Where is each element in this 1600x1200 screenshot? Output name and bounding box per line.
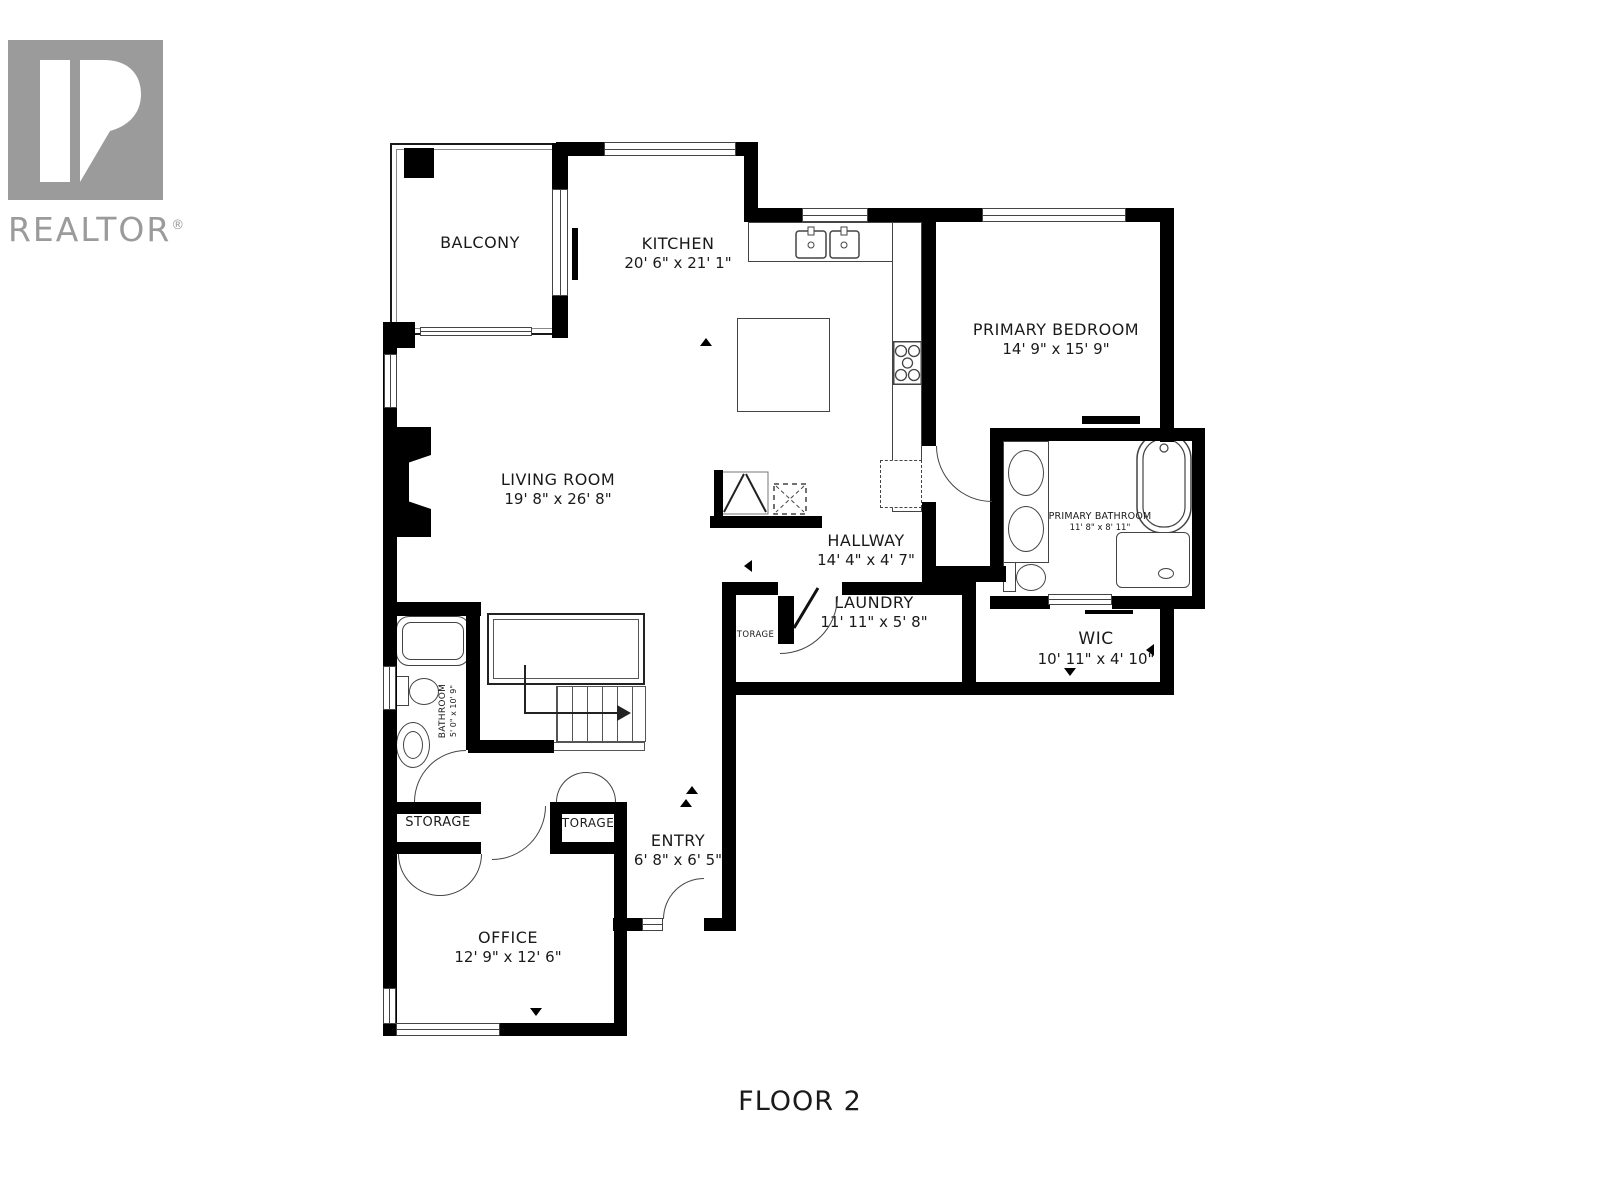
wall [466, 602, 480, 750]
realtor-wordmark: REALTOR® [8, 210, 193, 249]
wall [404, 148, 434, 178]
window [1048, 594, 1112, 605]
window [802, 208, 868, 222]
direction-marker [680, 799, 692, 807]
direction-marker [744, 560, 752, 572]
door-swing [398, 854, 440, 896]
wall [550, 802, 618, 814]
shower [1116, 532, 1190, 588]
room-label-storage-hall: STORAGE [405, 815, 470, 830]
room-label-entry: ENTRY 6' 8" x 6' 5" [634, 831, 722, 869]
wall [936, 208, 982, 222]
direction-marker [1064, 668, 1076, 676]
room-label-hallway: HALLWAY 14' 4" x 4' 7" [817, 531, 915, 569]
wall [922, 208, 936, 446]
wall [1112, 596, 1205, 609]
room-label-primary-bedroom: PRIMARY BEDROOM 14' 9" x 15' 9" [973, 320, 1139, 358]
wall [722, 682, 1174, 695]
wall [962, 582, 976, 682]
wall [552, 296, 568, 338]
stair-direction-arrow [505, 655, 640, 725]
toilet-bowl [409, 678, 439, 705]
toilet-bowl [1016, 564, 1046, 591]
wall [383, 322, 415, 348]
window [982, 208, 1126, 222]
realtor-logo: REALTOR® [8, 40, 193, 249]
direction-marker [686, 786, 698, 794]
wall [922, 502, 936, 566]
fireplace-opening [409, 455, 431, 509]
room-label-living-room: LIVING ROOM 19' 8" x 26' 8" [501, 470, 615, 508]
door-swing [556, 772, 586, 802]
direction-marker [968, 644, 976, 656]
wall [613, 918, 642, 931]
window [642, 918, 663, 931]
kitchen-island [737, 318, 830, 412]
window [420, 327, 532, 336]
appliance-space [880, 460, 922, 508]
window [384, 354, 397, 408]
room-label-bathroom: BATHROOM 5' 0" x 10' 9" [438, 684, 458, 738]
room-label-wic: WIC 10' 11" x 4' 10" [1038, 629, 1155, 668]
wall [714, 470, 723, 516]
door-swing [936, 446, 992, 502]
wall [572, 228, 578, 280]
shower-drain [1158, 568, 1174, 579]
room-label-storage-laundry: STORAGE [731, 630, 775, 640]
door-swing [586, 772, 616, 802]
window [383, 666, 396, 710]
kitchen-double-sink-icon [795, 227, 861, 259]
wall [744, 208, 802, 222]
room-label-storage-entry: STORAGE [554, 816, 615, 830]
vanity-sink [1008, 506, 1044, 552]
wall [550, 842, 618, 854]
wall [710, 516, 822, 528]
wall [383, 1023, 397, 1036]
stair-bottom-step [553, 742, 645, 751]
wall [1160, 208, 1174, 442]
registered-trademark-icon: ® [171, 218, 186, 233]
room-label-kitchen: KITCHEN 20' 6" x 21' 1" [624, 234, 731, 272]
stove-icon [893, 341, 922, 385]
wall [1192, 428, 1205, 609]
wall [704, 918, 724, 931]
door-swing [492, 806, 546, 860]
wall [383, 842, 481, 854]
door-swing [780, 596, 838, 654]
window [383, 988, 396, 1024]
wall [1160, 596, 1174, 682]
window [604, 142, 736, 156]
realtor-r-icon [8, 40, 163, 200]
window [552, 189, 568, 296]
wall [922, 566, 1006, 582]
wall [1085, 610, 1133, 614]
logo-brand-text: REALTOR [8, 210, 171, 249]
floor-plan-page: REALTOR® [0, 0, 1600, 1200]
wall [468, 740, 554, 753]
room-label-office: OFFICE 12' 9" x 12' 6" [454, 928, 561, 966]
room-label-balcony: BALCONY [440, 233, 520, 252]
wall [722, 582, 736, 931]
floor-title: FLOOR 2 [738, 1086, 862, 1117]
wall [383, 802, 481, 814]
wall [736, 582, 778, 595]
wall [1082, 416, 1140, 424]
wall [990, 428, 1192, 441]
toilet-tank [396, 676, 409, 706]
direction-marker [530, 1008, 542, 1016]
door-swing [440, 854, 482, 896]
wall [556, 142, 606, 156]
door-swing [663, 878, 704, 919]
direction-marker [700, 338, 712, 346]
vanity-sink [1008, 450, 1044, 496]
room-label-primary-bathroom: PRIMARY BATHROOM 11' 8" x 8' 11" [1049, 511, 1152, 533]
wall [990, 596, 1050, 609]
wall [842, 582, 966, 595]
window [396, 1023, 500, 1036]
direction-marker [1146, 644, 1154, 656]
pantry-cabinet-icon [710, 466, 810, 518]
wall [500, 1023, 627, 1036]
